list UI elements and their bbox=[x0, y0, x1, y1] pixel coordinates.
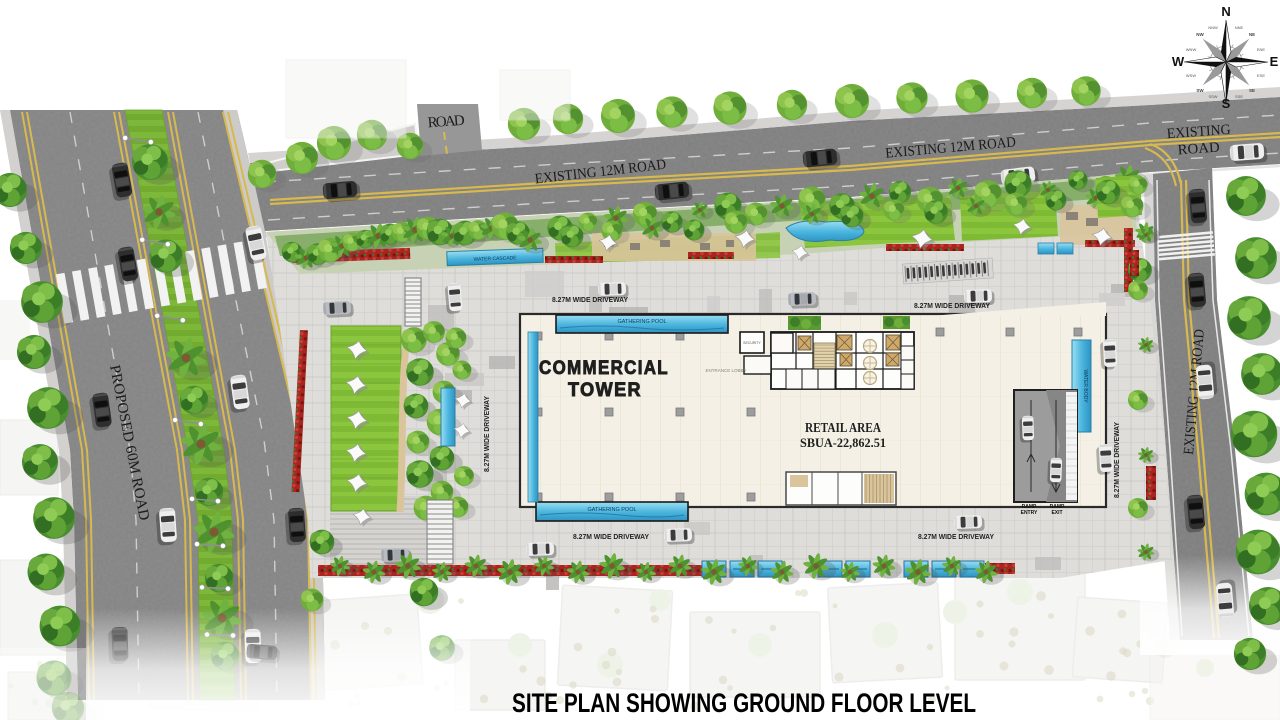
svg-text:SITE PLAN SHOWING GROUND FLOOR: SITE PLAN SHOWING GROUND FLOOR LEVEL bbox=[512, 688, 976, 718]
svg-text:ESE: ESE bbox=[1257, 73, 1265, 78]
svg-text:SSW: SSW bbox=[1208, 94, 1217, 99]
svg-text:GATHERING POOL: GATHERING POOL bbox=[617, 319, 666, 325]
svg-text:NNW: NNW bbox=[1208, 25, 1218, 30]
svg-text:8.27M WIDE DRIVEWAY: 8.27M WIDE DRIVEWAY bbox=[484, 396, 491, 472]
svg-text:COMMERCIAL: COMMERCIAL bbox=[539, 358, 669, 379]
svg-text:8.27M WIDE DRIVEWAY: 8.27M WIDE DRIVEWAY bbox=[918, 534, 994, 541]
svg-text:ROAD: ROAD bbox=[427, 113, 466, 132]
svg-text:8.27M WIDE DRIVEWAY: 8.27M WIDE DRIVEWAY bbox=[573, 534, 649, 541]
svg-text:ENTRANCE LOBBY: ENTRANCE LOBBY bbox=[705, 368, 746, 373]
svg-text:NE: NE bbox=[1249, 32, 1255, 37]
svg-text:WSW: WSW bbox=[1186, 73, 1196, 78]
svg-text:E: E bbox=[1270, 54, 1279, 69]
svg-text:SW: SW bbox=[1196, 88, 1204, 93]
svg-text:ENE: ENE bbox=[1257, 47, 1266, 52]
svg-text:N: N bbox=[1221, 4, 1230, 19]
svg-text:8.27M WIDE DRIVEWAY: 8.27M WIDE DRIVEWAY bbox=[1114, 422, 1121, 498]
svg-text:ENTRY: ENTRY bbox=[1021, 510, 1038, 516]
svg-text:WATER BODY: WATER BODY bbox=[1082, 369, 1088, 403]
svg-text:NNE: NNE bbox=[1235, 25, 1244, 30]
svg-text:NW: NW bbox=[1196, 32, 1204, 37]
svg-text:SBUA-22,862.51: SBUA-22,862.51 bbox=[800, 435, 886, 450]
svg-text:TOWER: TOWER bbox=[568, 380, 642, 401]
svg-text:SECURITY: SECURITY bbox=[743, 341, 761, 345]
svg-text:SE: SE bbox=[1249, 88, 1255, 93]
svg-text:W: W bbox=[1172, 54, 1185, 69]
svg-text:ROAD: ROAD bbox=[1177, 140, 1220, 159]
svg-text:GATHERING POOL: GATHERING POOL bbox=[587, 507, 636, 513]
svg-text:WNW: WNW bbox=[1186, 47, 1197, 52]
svg-text:SSE: SSE bbox=[1235, 94, 1243, 99]
svg-text:RETAIL AREA: RETAIL AREA bbox=[805, 421, 882, 436]
svg-text:EXIT: EXIT bbox=[1051, 510, 1062, 516]
svg-text:S: S bbox=[1222, 96, 1231, 111]
